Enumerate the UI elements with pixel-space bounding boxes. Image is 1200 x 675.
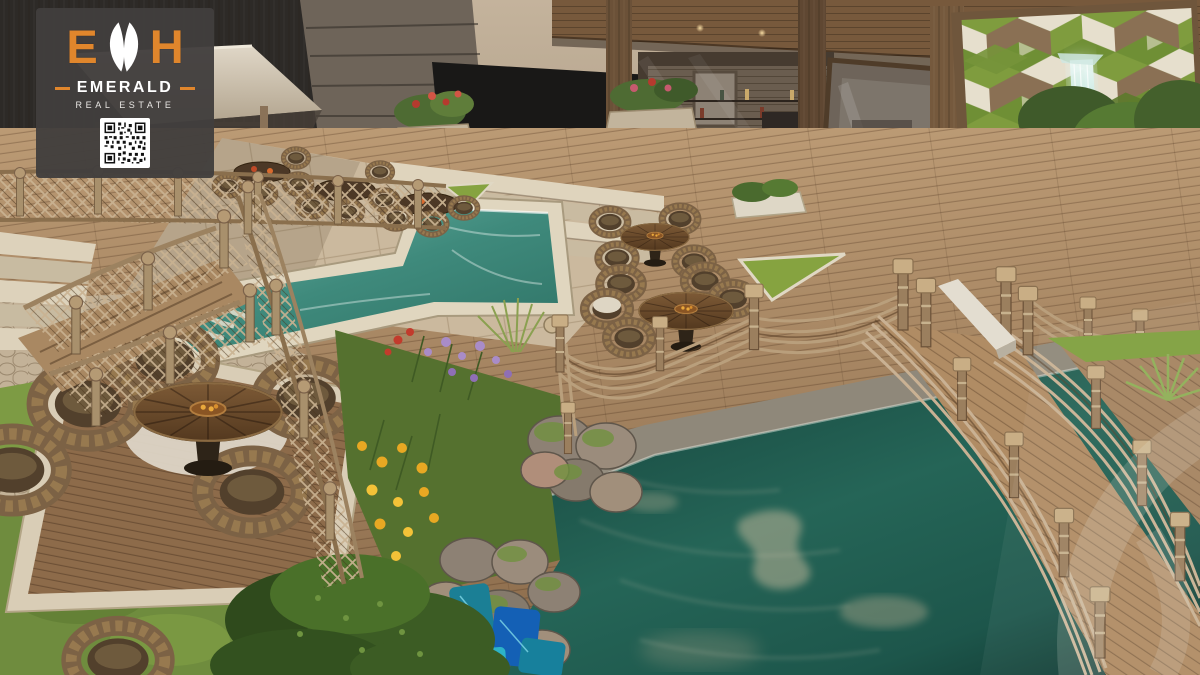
monogram: E H	[66, 18, 183, 76]
leaf-monogram-icon	[103, 21, 145, 73]
monogram-letter-h: H	[150, 20, 184, 74]
brand-tagline: REAL ESTATE	[76, 100, 175, 110]
brand-name-row: EMERALD	[48, 79, 203, 97]
monogram-letter-e: E	[66, 20, 97, 74]
dash-left-icon	[55, 87, 70, 90]
qr-code	[100, 118, 150, 168]
dash-right-icon	[180, 87, 195, 90]
brand-watermark-badge: E H EMERALD REAL ESTATE	[36, 8, 214, 178]
deck-planter	[732, 179, 806, 218]
render-image: E H EMERALD REAL ESTATE	[0, 0, 1200, 675]
brand-name: EMERALD	[77, 79, 174, 97]
